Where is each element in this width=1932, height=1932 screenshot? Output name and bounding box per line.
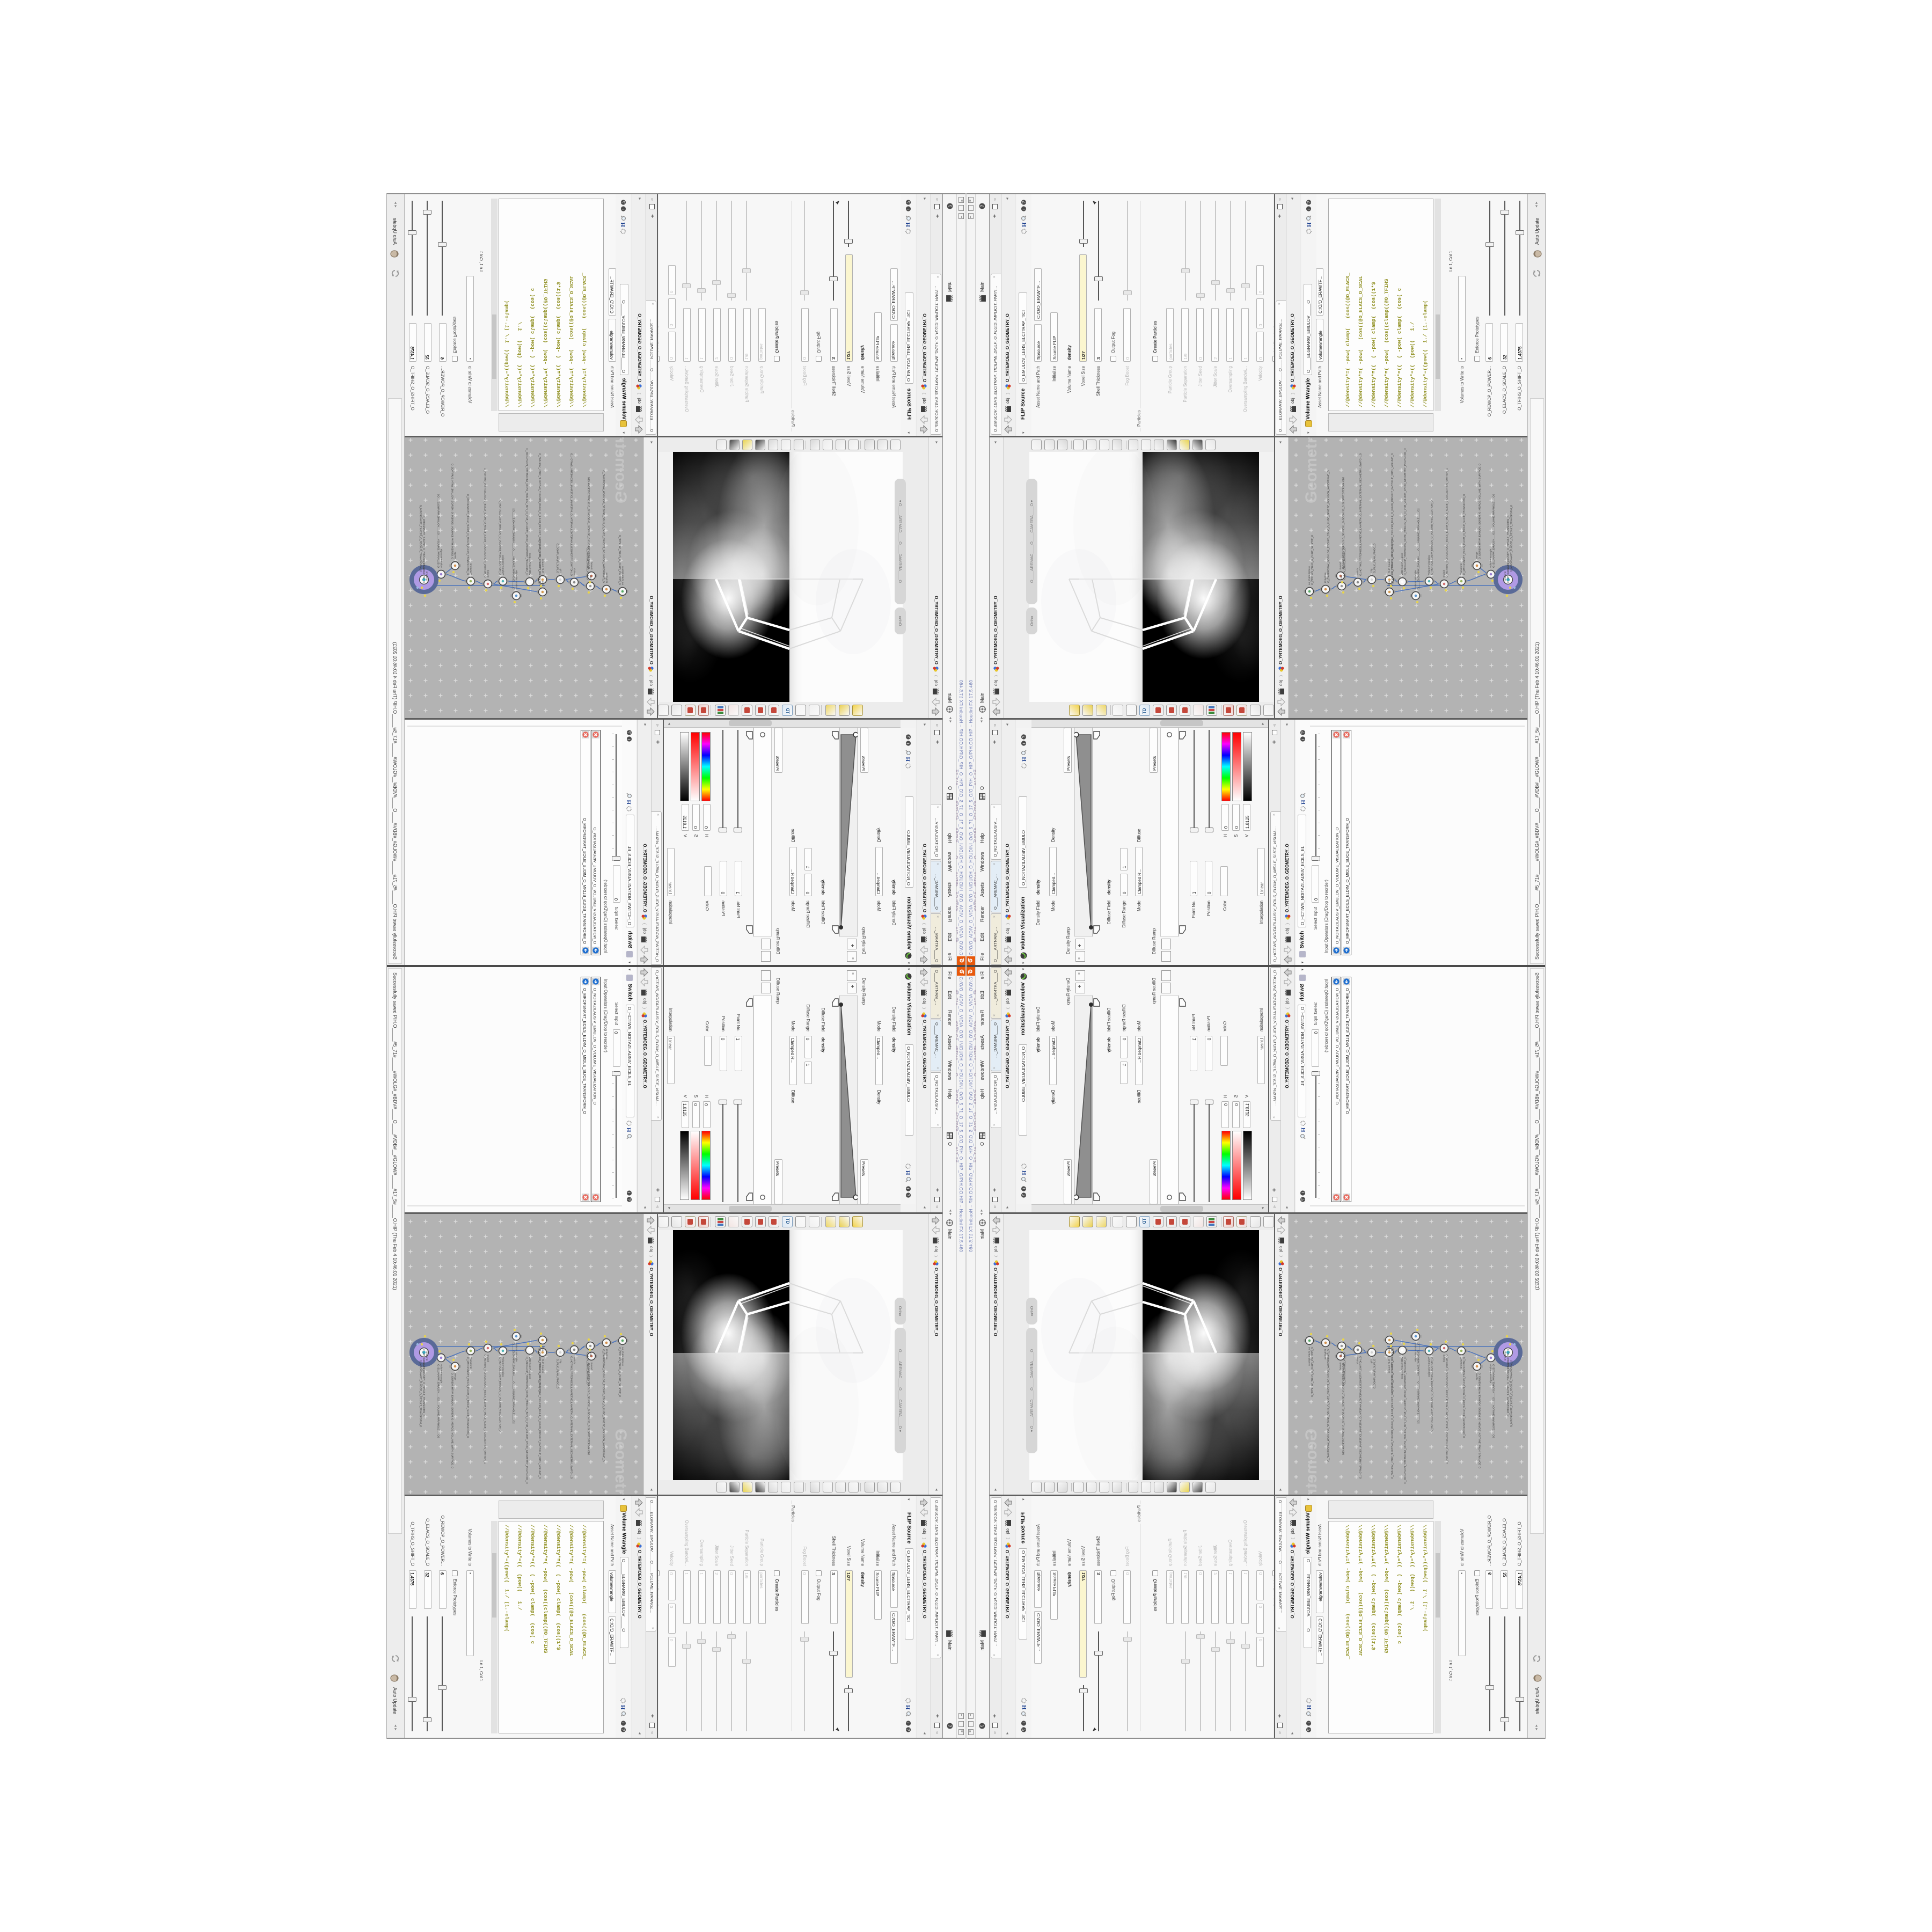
- svg-text:O_EREHPS_EBUC_O_CUBE_SPHERE_O: O_EREHPS_EBUC_O_CUBE_SPHERE_O: [1311, 1347, 1314, 1397]
- svg-text:O_EMARFERIW_NOGYLOP_EREHPS_EBU: O_EMARFERIW_NOGYLOP_EREHPS_EBUC_O_CUBE_S…: [1327, 1349, 1330, 1462]
- svg-text:JBO.M03.PETS.TRPOLS.O_3DJREG1_: JBO.M03.PETS.TRPOLS.O_3DJREG1_O.GEOM.S3_…: [1342, 1363, 1345, 1455]
- svg-text:O_HCTIWS_NOITAZILAUSIV_ECILS_E: O_HCTIWS_NOITAZILAUSIV_ECILS_ELDIM_O_MID…: [1446, 468, 1449, 577]
- svg-text:?: ?: [947, 204, 953, 207]
- svg-text:H: H: [620, 222, 626, 227]
- svg-text:O_PILC_FLAH_PMOC_O: O_PILC_FLAH_PMOC_O: [1373, 543, 1377, 573]
- svg-text:Volume Wrangle: Volume Wrangle: [1414, 1343, 1417, 1362]
- svg-text:Merge: Merge: [1475, 1373, 1479, 1380]
- svg-text:O____ELGNARW_EMULOV____O____VO: O____ELGNARW_EMULOV____O____VOLUME_WRANG…: [1417, 508, 1421, 589]
- svg-text:?: ?: [947, 1725, 953, 1728]
- svg-text:Volume Wrangle: Volume Wrangle: [1489, 1364, 1492, 1383]
- svg-text:O_EGREM_HTIW_EMULOV_EGREM_O_ME: O_EGREM_HTIW_EMULOV_EGREM_O_MERGE_VOLUME…: [1479, 1373, 1482, 1469]
- svg-text:i: i: [1301, 739, 1306, 740]
- svg-text:O_HCTIWS_NOITAZILAUSIV_ECILS_E: O_HCTIWS_NOITAZILAUSIV_ECILS_ELDIM_O_MID…: [1446, 1355, 1449, 1464]
- svg-text:O_MROFSNART_ECILS_ELDIM_O_MIDL: O_MROFSNART_ECILS_ELDIM_O_MIDLE_SLICE_TR…: [1463, 1357, 1466, 1438]
- svg-text:Transform: Transform: [1507, 560, 1510, 572]
- svg-text:an_CubeSphere: an_CubeSphere: [1308, 566, 1311, 585]
- svg-text:i: i: [905, 1188, 910, 1189]
- svg-text:?: ?: [979, 1725, 985, 1728]
- svg-text:Switch: Switch: [1356, 1356, 1359, 1364]
- svg-text:Volume Wrangle: Volume Wrangle: [1489, 549, 1492, 568]
- svg-text:O____ELGNARW_EMULOV____O____VO: O____ELGNARW_EMULOV____O____VOLUME_WRANG…: [1417, 1343, 1421, 1424]
- svg-text:FLIP Source: FLIP Source: [1388, 559, 1391, 573]
- svg-text:H: H: [905, 757, 911, 762]
- svg-text:Bound: Bound: [1339, 562, 1342, 569]
- svg-text:O_MROFSNART_TLUSER_O_RESULT_TR: O_MROFSNART_TLUSER_O_RESULT_TRANSFORM_O: [1510, 1360, 1513, 1428]
- svg-text:?: ?: [1022, 735, 1027, 738]
- svg-text:i: i: [1022, 743, 1027, 744]
- svg-text:Geometry: Geometry: [612, 437, 630, 503]
- svg-text:i: i: [626, 739, 631, 740]
- svg-text:H: H: [1021, 222, 1027, 227]
- svg-text:Switch: Switch: [1443, 570, 1446, 577]
- svg-text:i: i: [626, 1192, 631, 1193]
- svg-text:i: i: [905, 1722, 910, 1723]
- svg-text:Switch: Switch: [1443, 1355, 1446, 1362]
- svg-text:H: H: [905, 1705, 911, 1710]
- svg-text:Clip: Clip: [1370, 568, 1373, 573]
- svg-text:H: H: [1021, 757, 1027, 762]
- svg-text:?: ?: [620, 201, 625, 203]
- svg-text:?: ?: [905, 735, 910, 738]
- svg-text:?: ?: [626, 731, 631, 734]
- svg-text:O_ELGNARW_EMULOV___O2___VOLUME: O_ELGNARW_EMULOV___O2___VOLUME_WRANGLE__…: [1492, 494, 1496, 568]
- svg-text:i: i: [1022, 209, 1027, 210]
- svg-text:O_EMULOV_LEHS_ELCITRAP_TICILPM: O_EMULOV_LEHS_ELCITRAP_TICILPMI_DIULF_O_…: [1391, 453, 1394, 573]
- svg-text:H: H: [1300, 1128, 1306, 1132]
- svg-text:?: ?: [620, 1729, 625, 1731]
- svg-text:File: File: [1340, 575, 1343, 580]
- svg-text:?: ?: [1307, 1729, 1312, 1731]
- svg-text:Transform: Transform: [1504, 571, 1507, 583]
- svg-text:Clip: Clip: [1370, 1359, 1373, 1364]
- svg-text:H: H: [1021, 1705, 1027, 1710]
- svg-text:i: i: [1022, 1188, 1027, 1189]
- svg-text:O_NROGSNART_TLUSER_O_RESULT_TR: O_NROGSNART_TLUSER_O_RESULT_TRANSFORM_O: [1507, 515, 1510, 583]
- svg-text:O_EREHPS_EBUC_O_CUBE_SPHERE_O: O_EREHPS_EBUC_O_CUBE_SPHERE_O: [1311, 535, 1314, 585]
- svg-text:i: i: [1301, 1192, 1306, 1193]
- svg-text:?: ?: [1301, 731, 1306, 734]
- svg-text:O_SNOGLOP_YRTEMOEG_MORF_EMULOV: O_SNOGLOP_YRTEMOEG_MORF_EMULOV_BDV_O_VDB…: [1404, 448, 1407, 575]
- svg-text:Clip: Clip: [1388, 1346, 1391, 1351]
- svg-text:?: ?: [626, 1198, 631, 1201]
- svg-text:PolyWire: PolyWire: [1324, 1349, 1327, 1360]
- svg-text:i: i: [620, 209, 625, 210]
- svg-text:?: ?: [905, 201, 910, 203]
- svg-text:?: ?: [1301, 1198, 1306, 1201]
- svg-text:Volume Visualiza: Volume Visualiza: [1428, 555, 1431, 575]
- svg-text:O_EMARFERIW_NOGYLOP_EREHPS_EBU: O_EMARFERIW_NOGYLOP_EREHPS_EBUC_O_CUBE_S…: [1327, 470, 1330, 583]
- svg-text:H: H: [1021, 1170, 1027, 1175]
- svg-text:O_SNOGLOP_YRTEMOEG_MORF_EMULOV: O_SNOGLOP_YRTEMOEG_MORF_EMULOV_BDV_O_VDB…: [1404, 1357, 1407, 1484]
- svg-text:VDB from Polygons: VDB from Polygons: [1401, 1357, 1404, 1379]
- svg-text:i: i: [905, 743, 910, 744]
- svg-text:O_NROGSNART_TLUSER_O_RESULT_TR: O_NROGSNART_TLUSER_O_RESULT_TRANSFORM_O: [1507, 1349, 1510, 1417]
- svg-text:?: ?: [1022, 1194, 1027, 1197]
- svg-text:O_EMULOV_LEHS_ELCITRAP_TICILPM: O_EMULOV_LEHS_ELCITRAP_TICILPMI_DIULF_O_…: [1391, 1359, 1394, 1479]
- svg-text:i: i: [905, 209, 910, 210]
- svg-text:an_CubeSphere: an_CubeSphere: [1308, 1347, 1311, 1366]
- svg-text:O_HCTIWS_YRTEMOEG_LANRETXE_LAN: O_HCTIWS_YRTEMOEG_LANRETXE_LANRETNI_O_IN…: [1359, 1356, 1363, 1479]
- svg-text:?: ?: [905, 1194, 910, 1197]
- svg-text:H: H: [626, 1128, 632, 1132]
- svg-text:H: H: [1306, 222, 1312, 227]
- svg-text:?: ?: [979, 204, 985, 207]
- svg-text:VDB from Polygons: VDB from Polygons: [1401, 553, 1404, 575]
- svg-text:Geometry: Geometry: [612, 1429, 630, 1495]
- svg-text:O_MROFSNART_ECILS_ELDIM_O_MIDL: O_MROFSNART_ECILS_ELDIM_O_MIDLE_SLICE_TR…: [1463, 494, 1466, 575]
- svg-text:Transform: Transform: [1460, 1357, 1463, 1369]
- svg-text:Volume Visualiza: Volume Visualiza: [1428, 1357, 1431, 1377]
- svg-text:i: i: [620, 1722, 625, 1723]
- svg-text:Transform: Transform: [1460, 563, 1463, 575]
- svg-text:O_MROFSNART_TLUSER_O_RESULT_TR: O_MROFSNART_TLUSER_O_RESULT_TRANSFORM_O: [1510, 504, 1513, 572]
- svg-text:Clip: Clip: [1388, 581, 1391, 586]
- svg-text:File: File: [1340, 1352, 1343, 1357]
- svg-text:Transform: Transform: [1507, 1360, 1510, 1372]
- svg-text:H: H: [905, 1170, 911, 1175]
- svg-text:Merge: Merge: [1475, 552, 1479, 559]
- svg-text:H: H: [905, 222, 911, 227]
- svg-text:Switch: Switch: [1356, 568, 1359, 576]
- svg-text:O_EGREM_HTIW_EMULOV_EGREM_O_ME: O_EGREM_HTIW_EMULOV_EGREM_O_MERGE_VOLUME…: [1479, 463, 1482, 559]
- svg-text:?: ?: [1022, 1729, 1027, 1731]
- svg-text:?: ?: [905, 1729, 910, 1731]
- svg-text:i: i: [1307, 209, 1312, 210]
- svg-text:Volume Wrangle: Volume Wrangle: [1414, 570, 1417, 589]
- svg-text:i: i: [1022, 1722, 1027, 1723]
- svg-text:O_NOITAZILAUSIV_EMULOV_O_VOLUM: O_NOITAZILAUSIV_EMULOV_O_VOLUME_VISUALIZ…: [1431, 500, 1434, 575]
- svg-text:Geometry: Geometry: [1302, 1429, 1320, 1495]
- svg-text:Geometry: Geometry: [1302, 437, 1320, 503]
- svg-text:H: H: [1306, 1705, 1312, 1710]
- svg-text:JBO.M03.PETS.TRPOLS.O_3DJREG1_: JBO.M03.PETS.TRPOLS.O_3DJREG1_O.GEOM.S3_…: [1342, 477, 1345, 569]
- svg-text:PolyWire: PolyWire: [1324, 572, 1327, 583]
- svg-text:?: ?: [1022, 201, 1027, 203]
- svg-text:i: i: [1307, 1722, 1312, 1723]
- svg-text:O_NOITAZILAUSIV_EMULOV_O_VOLUM: O_NOITAZILAUSIV_EMULOV_O_VOLUME_VISUALIZ…: [1431, 1357, 1434, 1432]
- svg-text:H: H: [620, 1705, 626, 1710]
- svg-text:FLIP Source: FLIP Source: [1388, 1359, 1391, 1373]
- svg-text:O_ELGNARW_EMULOV___O2___VOLUME: O_ELGNARW_EMULOV___O2___VOLUME_WRANGLE__…: [1492, 1364, 1496, 1438]
- svg-text:Bound: Bound: [1339, 1363, 1342, 1370]
- svg-text:H: H: [1300, 800, 1306, 804]
- svg-text:H: H: [626, 800, 632, 804]
- svg-text:O_HCTIWS_YRTEMOEG_LANRETXE_LAN: O_HCTIWS_YRTEMOEG_LANRETXE_LANRETNI_O_IN…: [1359, 453, 1363, 576]
- svg-text:Transform: Transform: [1504, 1349, 1507, 1361]
- svg-text:O_PILC_FLAH_PMOC_O: O_PILC_FLAH_PMOC_O: [1373, 1359, 1377, 1389]
- svg-text:?: ?: [1307, 201, 1312, 203]
